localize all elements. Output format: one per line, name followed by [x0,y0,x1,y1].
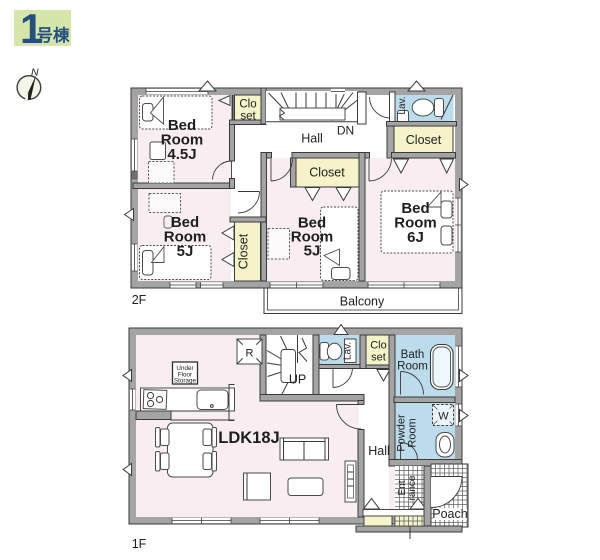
svg-text:5J: 5J [304,243,321,260]
svg-text:6J: 6J [407,229,424,246]
svg-text:set: set [371,352,386,364]
svg-text:5J: 5J [177,243,194,260]
svg-text:UP: UP [289,373,306,387]
svg-text:R: R [246,348,254,360]
svg-text:Clo: Clo [239,99,256,111]
svg-text:Room: Room [397,361,428,373]
svg-text:Hall: Hall [301,132,323,146]
svg-text:1F: 1F [132,537,147,551]
svg-text:rance: rance [407,475,418,500]
svg-text:Lav.: Lav. [343,342,354,360]
svg-text:DN: DN [337,124,354,138]
svg-text:号棟: 号棟 [37,25,71,45]
svg-text:Lav.: Lav. [397,96,408,114]
svg-text:W: W [438,411,449,423]
svg-text:2F: 2F [132,293,147,307]
svg-text:Hall: Hall [368,444,390,458]
svg-text:Storage: Storage [174,378,197,385]
svg-text:Room: Room [407,418,419,447]
svg-text:4.5J: 4.5J [167,146,196,163]
svg-text:Poach: Poach [432,507,467,521]
svg-text:Closet: Closet [309,166,345,180]
svg-text:LDK18J: LDK18J [218,429,279,447]
svg-text:Closet: Closet [406,133,442,147]
svg-text:N: N [31,67,39,79]
svg-text:Balcony: Balcony [340,295,385,309]
svg-text:Closet: Closet [237,233,251,269]
svg-text:Clo: Clo [370,340,387,352]
svg-text:Bath: Bath [401,349,425,361]
